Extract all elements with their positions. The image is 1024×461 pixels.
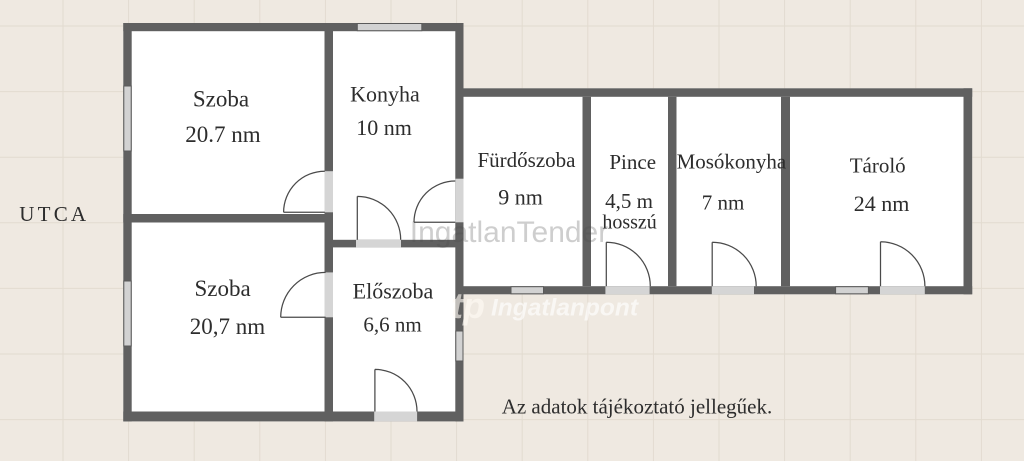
svg-text:7 nm: 7 nm [702, 190, 745, 214]
svg-text:4,5 m: 4,5 m [605, 189, 653, 213]
svg-text:UTCA: UTCA [19, 202, 89, 226]
svg-text:Konyha: Konyha [350, 82, 420, 107]
svg-text:6,6 nm: 6,6 nm [363, 312, 421, 336]
svg-text:Mosókonyha: Mosókonyha [677, 150, 787, 174]
svg-text:IngatlanTender: IngatlanTender [410, 216, 609, 249]
svg-text:Szoba: Szoba [193, 87, 249, 112]
svg-text:hosszú: hosszú [602, 212, 656, 234]
svg-text:Ingatlanpont: Ingatlanpont [491, 295, 639, 322]
svg-text:Az adatok tájékoztató jellegűe: Az adatok tájékoztató jellegűek. [502, 395, 773, 419]
svg-text:Fürdőszoba: Fürdőszoba [478, 148, 577, 172]
svg-text:20.7 nm: 20.7 nm [185, 122, 261, 147]
svg-text:9 nm: 9 nm [498, 184, 543, 209]
svg-text:tp: tp [451, 285, 485, 326]
svg-text:24 nm: 24 nm [854, 191, 910, 216]
svg-text:Tároló: Tároló [850, 153, 906, 177]
svg-text:Pince: Pince [609, 150, 656, 174]
svg-text:10 nm: 10 nm [356, 115, 412, 140]
svg-text:20,7 nm: 20,7 nm [190, 314, 266, 339]
svg-text:Előszoba: Előszoba [353, 278, 434, 303]
svg-text:Szoba: Szoba [194, 276, 250, 301]
